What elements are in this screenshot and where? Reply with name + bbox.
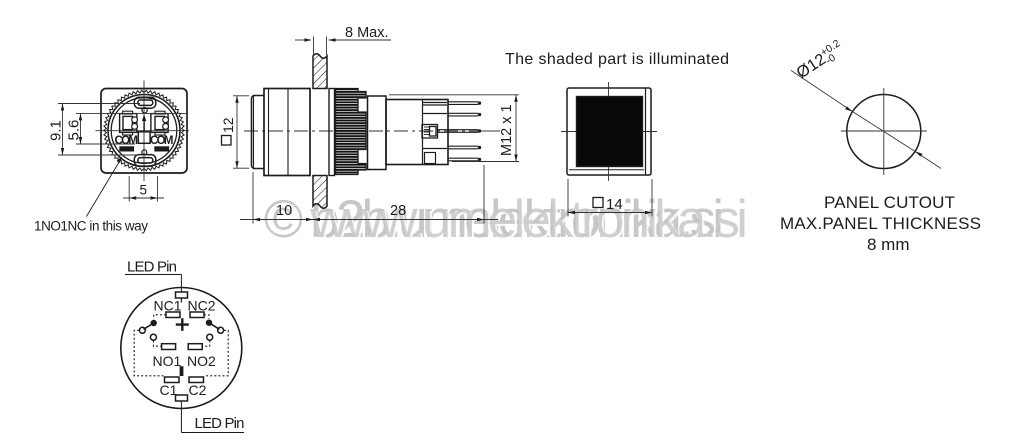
svg-text:M12 x 1: M12 x 1: [499, 104, 515, 156]
svg-text:LED Pin: LED Pin: [127, 259, 177, 276]
svg-text:NO1: NO1: [153, 353, 182, 369]
svg-text:14: 14: [606, 196, 623, 213]
svg-text:NC2: NC2: [188, 298, 216, 314]
svg-text:COM: COM: [150, 135, 174, 147]
svg-text:12: 12: [220, 117, 236, 133]
svg-text:NC1: NC1: [154, 298, 182, 314]
svg-text:MAX.PANEL THICKNESS: MAX.PANEL THICKNESS: [780, 214, 981, 233]
svg-text:9.1: 9.1: [48, 120, 65, 141]
svg-text:5.6: 5.6: [66, 120, 83, 141]
svg-text:C2: C2: [189, 382, 207, 398]
svg-text:COM: COM: [115, 135, 139, 147]
svg-text:28: 28: [390, 203, 406, 219]
svg-text:8 Max.: 8 Max.: [345, 25, 389, 41]
svg-text:8 mm: 8 mm: [867, 235, 910, 254]
svg-text:5: 5: [140, 183, 148, 198]
svg-text:The shaded part is illuminated: The shaded part is illuminated: [505, 51, 729, 68]
svg-text:1NO1NC in this way: 1NO1NC in this way: [34, 219, 148, 234]
svg-text:NO2: NO2: [187, 353, 216, 369]
svg-text:10: 10: [276, 203, 292, 219]
svg-text:LED Pin: LED Pin: [195, 415, 245, 432]
svg-text:PANEL CUTOUT: PANEL CUTOUT: [824, 193, 955, 212]
